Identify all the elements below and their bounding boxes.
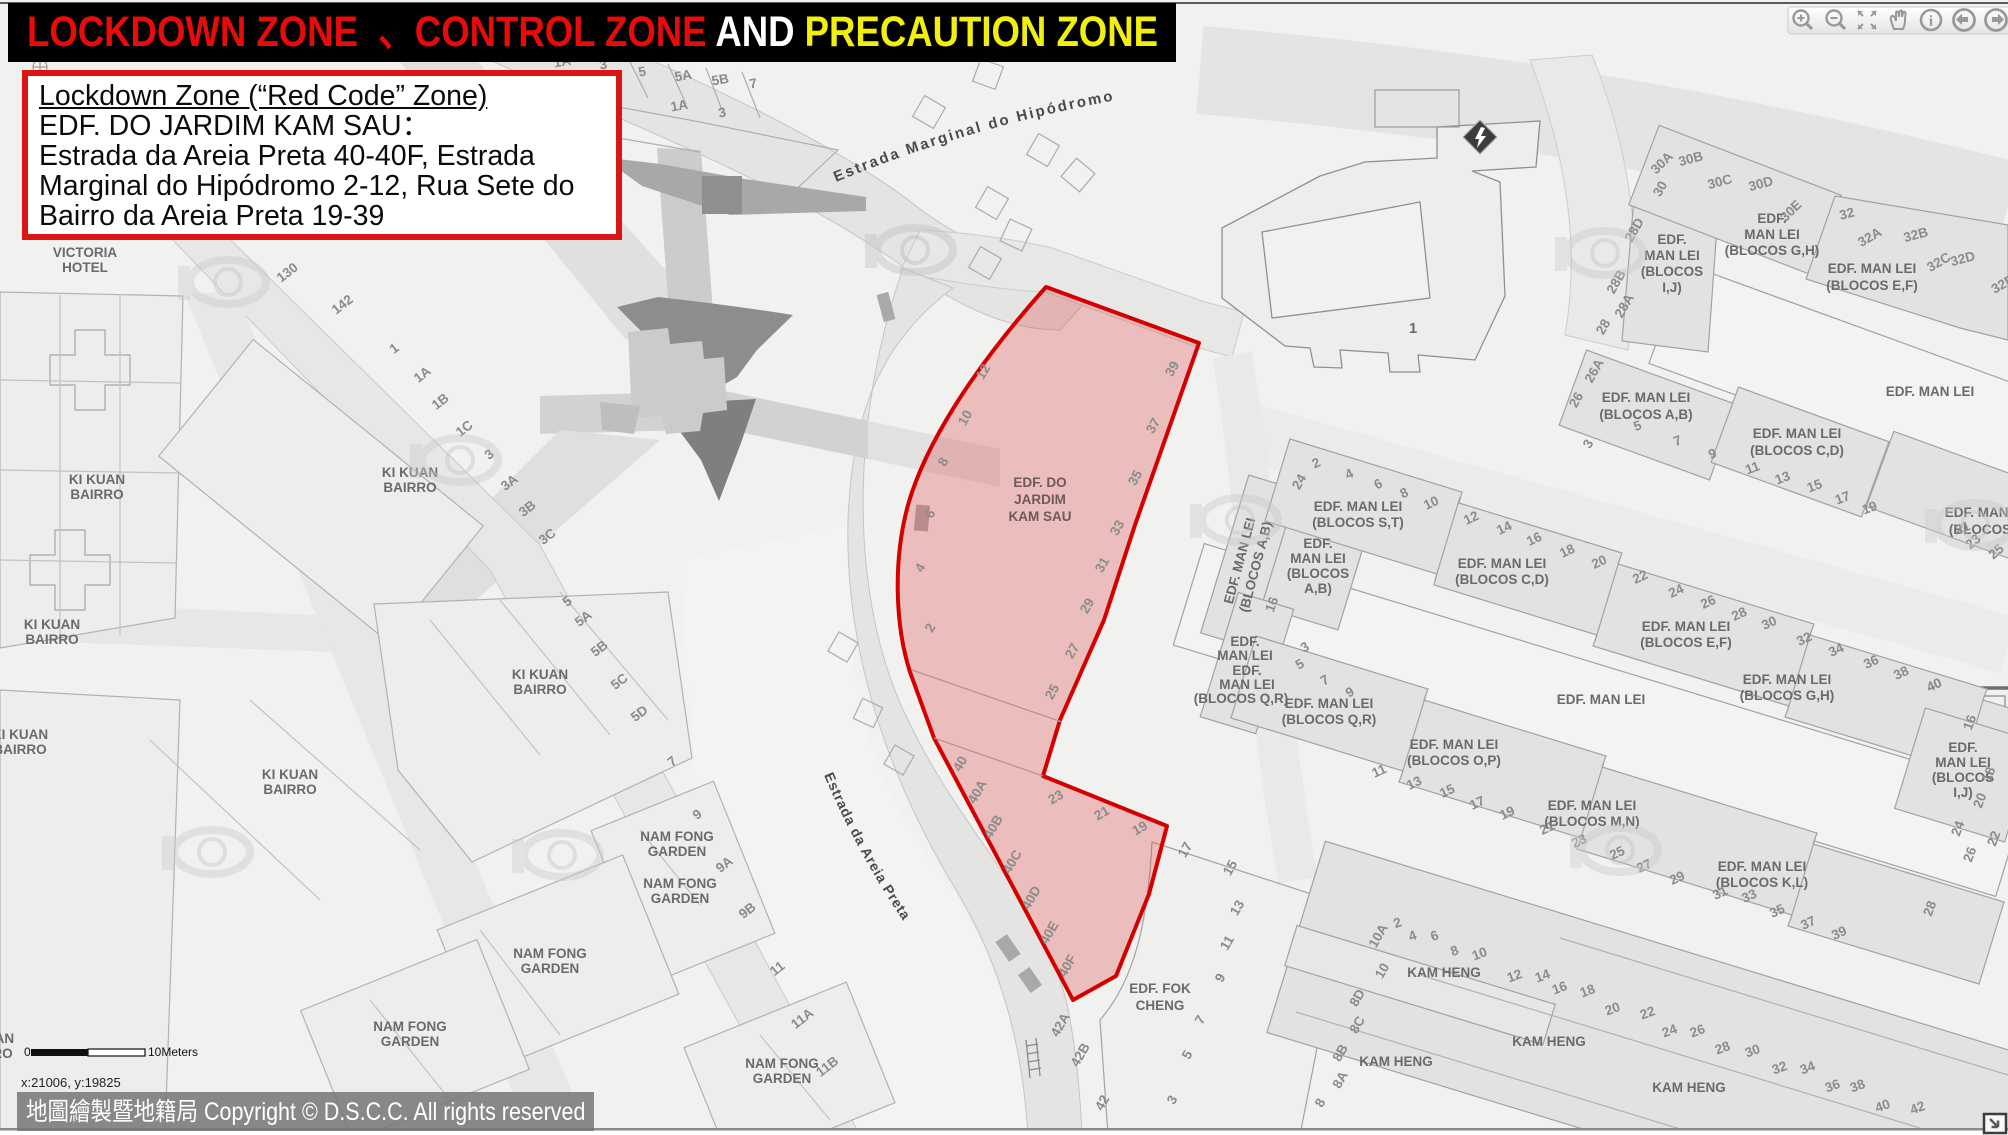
svg-text:KI KUAN: KI KUAN — [69, 472, 125, 487]
svg-text:(BLOCOS: (BLOCOS — [1287, 566, 1349, 581]
svg-text:JARDIM: JARDIM — [1014, 492, 1066, 507]
svg-text:KAM HENG: KAM HENG — [1652, 1080, 1726, 1095]
svg-text:1A: 1A — [669, 97, 689, 115]
svg-text:KI KUAN: KI KUAN — [24, 617, 80, 632]
svg-text:EDF. MAN LEI: EDF. MAN LEI — [1458, 556, 1547, 571]
svg-text:EDF.: EDF. — [1657, 232, 1686, 247]
svg-text:(BLOCOS Q,R): (BLOCOS Q,R) — [1194, 691, 1289, 706]
svg-text:EDF. MAN LEI: EDF. MAN LEI — [1743, 672, 1832, 687]
svg-text:NAM FONG: NAM FONG — [643, 876, 717, 891]
svg-text:BAIRRO: BAIRRO — [70, 487, 123, 502]
svg-text:KI KUAN: KI KUAN — [0, 727, 48, 742]
svg-text:(BLOCOS C,D): (BLOCOS C,D) — [1455, 572, 1549, 587]
svg-text:MAN LEI: MAN LEI — [1644, 248, 1700, 263]
svg-text:KI KUAN: KI KUAN — [262, 767, 318, 782]
svg-text:GARDEN: GARDEN — [648, 844, 707, 859]
svg-text:MAN LEI: MAN LEI — [1217, 648, 1273, 663]
svg-text:(BLOCOS Q,R): (BLOCOS Q,R) — [1282, 712, 1377, 727]
svg-text:EDF. MAN LEI: EDF. MAN LEI — [1557, 692, 1646, 707]
svg-text:EDF. MAN LEI: EDF. MAN LEI — [1828, 261, 1917, 276]
svg-text:(BLOCOS O,P): (BLOCOS O,P) — [1407, 753, 1501, 768]
svg-text:EDF. MAN LEI: EDF. MAN LEI — [1753, 426, 1842, 441]
svg-text:EDF. MAN LEI: EDF. MAN LEI — [1410, 737, 1499, 752]
svg-text:BAIRRO: BAIRRO — [25, 632, 78, 647]
svg-text:EDF. MAN LEI: EDF. MAN LEI — [1285, 696, 1374, 711]
svg-text:MAN LEI: MAN LEI — [1219, 677, 1275, 692]
svg-text:5B: 5B — [710, 71, 730, 89]
svg-text:I,J): I,J) — [1662, 280, 1682, 295]
svg-text:(BLOCOS C,D): (BLOCOS C,D) — [1750, 443, 1844, 458]
svg-text:NAM FONG: NAM FONG — [513, 946, 587, 961]
svg-text:HOTEL: HOTEL — [62, 260, 108, 275]
svg-text:(BLOCOS A,B): (BLOCOS A,B) — [1599, 407, 1692, 422]
svg-text:KAM HENG: KAM HENG — [1407, 965, 1481, 980]
svg-text:EDF. MAN LEI: EDF. MAN LEI — [1718, 859, 1807, 874]
svg-text:A,B): A,B) — [1304, 581, 1332, 596]
svg-text:MAN LEI: MAN LEI — [1290, 551, 1346, 566]
svg-text:NAM FONG: NAM FONG — [745, 1056, 819, 1071]
svg-text:GARDEN: GARDEN — [651, 891, 710, 906]
svg-text:NAM FONG: NAM FONG — [640, 829, 714, 844]
svg-text:(BLOCOS E,F): (BLOCOS E,F) — [1826, 278, 1918, 293]
svg-text:(BLOCOS S,T): (BLOCOS S,T) — [1312, 515, 1404, 530]
svg-text:EDF. DO: EDF. DO — [1013, 475, 1066, 490]
svg-text:5A: 5A — [673, 67, 693, 85]
svg-text:(BLOCOS G,H): (BLOCOS G,H) — [1725, 243, 1820, 258]
svg-text:GARDEN: GARDEN — [521, 961, 580, 976]
svg-text:VICTORIA: VICTORIA — [53, 245, 118, 260]
svg-text:EDF. MAN LEI: EDF. MAN LEI — [1886, 384, 1975, 399]
svg-text:NAM FONG: NAM FONG — [373, 1019, 447, 1034]
svg-text:CHENG: CHENG — [1136, 998, 1185, 1013]
svg-text:BAIRRO: BAIRRO — [0, 1046, 13, 1061]
svg-text:(BLOCOS E,F): (BLOCOS E,F) — [1640, 635, 1732, 650]
svg-text:KI KUAN: KI KUAN — [512, 667, 568, 682]
svg-text:BAIRRO: BAIRRO — [263, 782, 316, 797]
svg-text:EDF. MAN LEI: EDF. MAN LEI — [1602, 390, 1691, 405]
svg-text:MAN LEI: MAN LEI — [1744, 227, 1800, 242]
svg-text:EDF. MAN LEI: EDF. MAN LEI — [1548, 798, 1637, 813]
svg-text:i: i — [1929, 14, 1933, 30]
svg-text:I,J): I,J) — [1953, 785, 1973, 800]
svg-text:EDF. MAN LEI: EDF. MAN LEI — [1314, 499, 1403, 514]
svg-text:EDF.: EDF. — [1232, 663, 1261, 678]
svg-text:(BLOCOS G,H): (BLOCOS G,H) — [1740, 688, 1835, 703]
svg-text:BAIRRO: BAIRRO — [513, 682, 566, 697]
svg-text:KI KUAN: KI KUAN — [0, 1031, 14, 1046]
svg-text:EDF. MAN LEI: EDF. MAN LEI — [1642, 619, 1731, 634]
svg-text:(BLOCOS K,L): (BLOCOS K,L) — [1716, 875, 1808, 890]
svg-text:KAM HENG: KAM HENG — [1512, 1034, 1586, 1049]
svg-text:EDF.: EDF. — [1230, 634, 1259, 649]
svg-text:BAIRRO: BAIRRO — [0, 742, 47, 757]
svg-text:EDF.: EDF. — [1303, 536, 1332, 551]
svg-text:GARDEN: GARDEN — [753, 1071, 812, 1086]
svg-text:1: 1 — [1409, 320, 1417, 337]
svg-text:BAIRRO: BAIRRO — [383, 480, 436, 495]
svg-text:EDF.: EDF. — [1948, 740, 1977, 755]
svg-text:GARDEN: GARDEN — [381, 1034, 440, 1049]
svg-text:EDF. FOK: EDF. FOK — [1129, 981, 1191, 996]
svg-text:KAM HENG: KAM HENG — [1359, 1054, 1433, 1069]
svg-text:(BLOCOS: (BLOCOS — [1641, 264, 1703, 279]
svg-text:KAM SAU: KAM SAU — [1009, 509, 1072, 524]
